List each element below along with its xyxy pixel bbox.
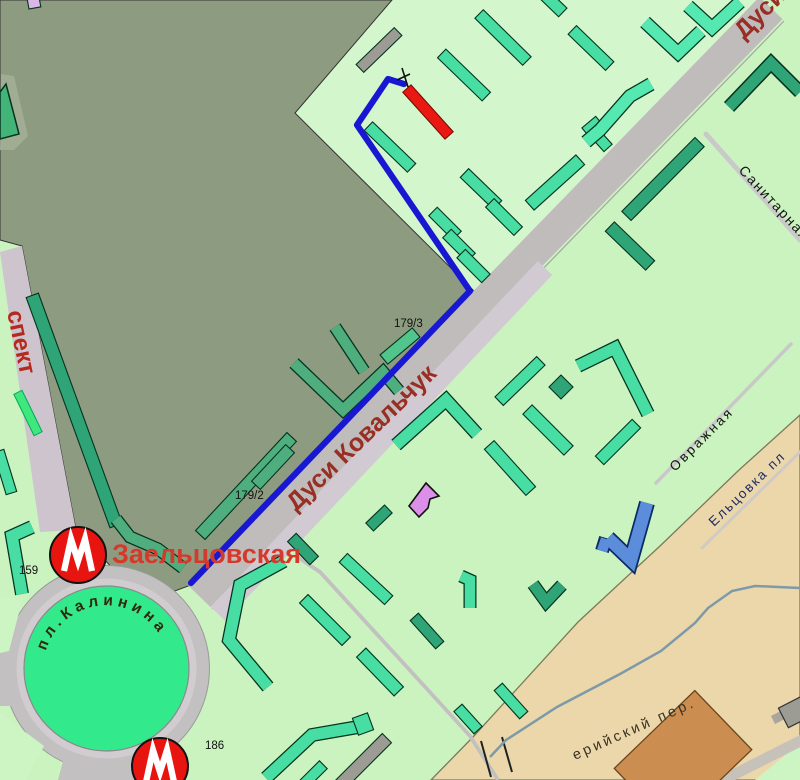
svg-text:186: 186 <box>205 740 224 752</box>
svg-text:179/2: 179/2 <box>235 490 264 502</box>
svg-text:Заельцовская: Заельцовская <box>112 539 301 569</box>
svg-text:159: 159 <box>19 565 38 577</box>
svg-text:179/3: 179/3 <box>394 318 423 330</box>
